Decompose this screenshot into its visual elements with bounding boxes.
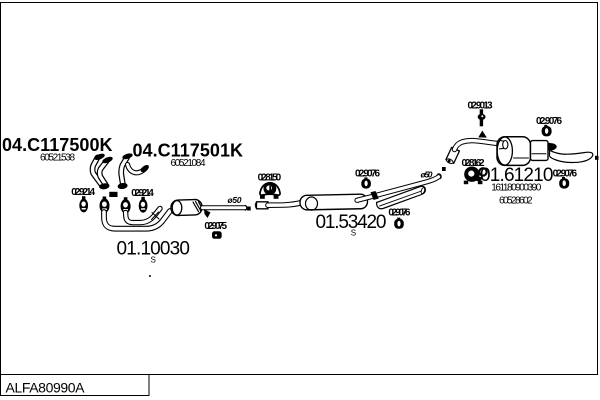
svg-text:60521538: 60521538 bbox=[40, 153, 75, 164]
svg-text:02.9076: 02.9076 bbox=[355, 169, 380, 180]
svg-text:161180900390: 161180900390 bbox=[491, 183, 541, 194]
svg-text:02.9076: 02.9076 bbox=[536, 116, 562, 127]
svg-text:60521084: 60521084 bbox=[171, 158, 206, 169]
svg-text:S: S bbox=[351, 229, 356, 238]
svg-text:ALFA80990A: ALFA80990A bbox=[6, 380, 86, 396]
svg-text:02.9076: 02.9076 bbox=[388, 208, 410, 219]
svg-text:02.8150: 02.8150 bbox=[258, 173, 282, 184]
svg-text:ø50: ø50 bbox=[228, 195, 242, 205]
svg-text:02.9076: 02.9076 bbox=[553, 169, 578, 180]
svg-text:S: S bbox=[151, 256, 156, 265]
svg-text:60528602: 60528602 bbox=[499, 196, 533, 207]
svg-text:02.9075: 02.9075 bbox=[204, 221, 227, 232]
